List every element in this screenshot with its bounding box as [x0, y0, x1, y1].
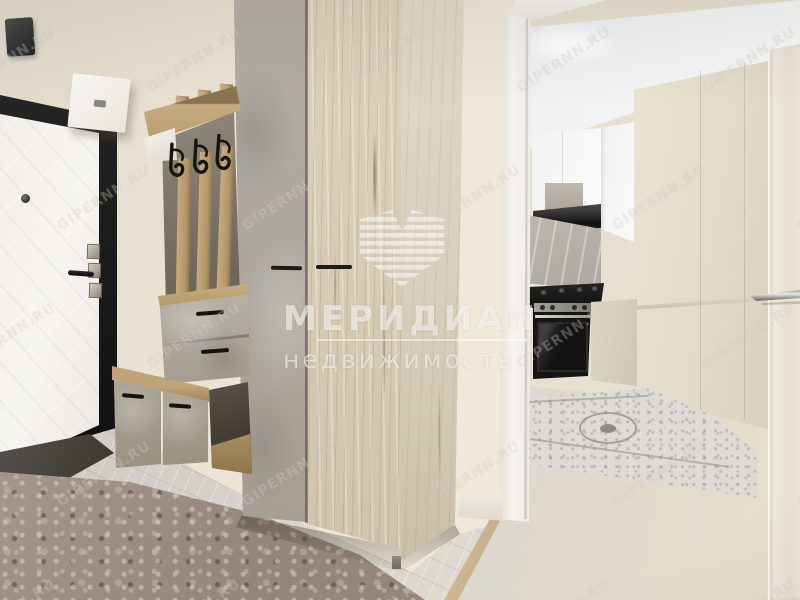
wardrobe-side-panel: [401, 0, 465, 575]
kitchen-base-cabinet: [591, 299, 638, 387]
wall-baseboard: [456, 488, 504, 524]
lock-plate-top: [87, 244, 101, 259]
wardrobe-handle-left: [271, 266, 302, 271]
entrance-door: [0, 0, 110, 480]
wardrobe-foot: [392, 556, 401, 569]
wardrobe-door-gap: [305, 0, 308, 523]
oven-glass: [537, 322, 588, 372]
oven-control-panel: [534, 303, 591, 312]
wardrobe-right-door: [307, 0, 401, 550]
oven-handle: [535, 315, 590, 318]
doorbell-chime: [67, 73, 130, 133]
wall-device: [5, 17, 36, 57]
apartment-photo: GIPERNN.RUGIPERNN.RUGIPERNN.RUGIPERNN.RU…: [0, 0, 800, 600]
peephole: [21, 194, 30, 203]
cabinet-seam: [744, 62, 745, 420]
coat-hooks: [165, 134, 243, 186]
kitchen-tall-cabinets: [634, 55, 772, 435]
kitchen-white-column: [601, 120, 635, 242]
lock-plate-bottom: [89, 283, 103, 298]
kitchen-door: [768, 44, 800, 600]
wardrobe-handle-right: [316, 265, 352, 269]
chime-slot: [94, 99, 107, 107]
rug-medallion-core: [600, 424, 616, 433]
cabinet-seam: [700, 70, 701, 410]
